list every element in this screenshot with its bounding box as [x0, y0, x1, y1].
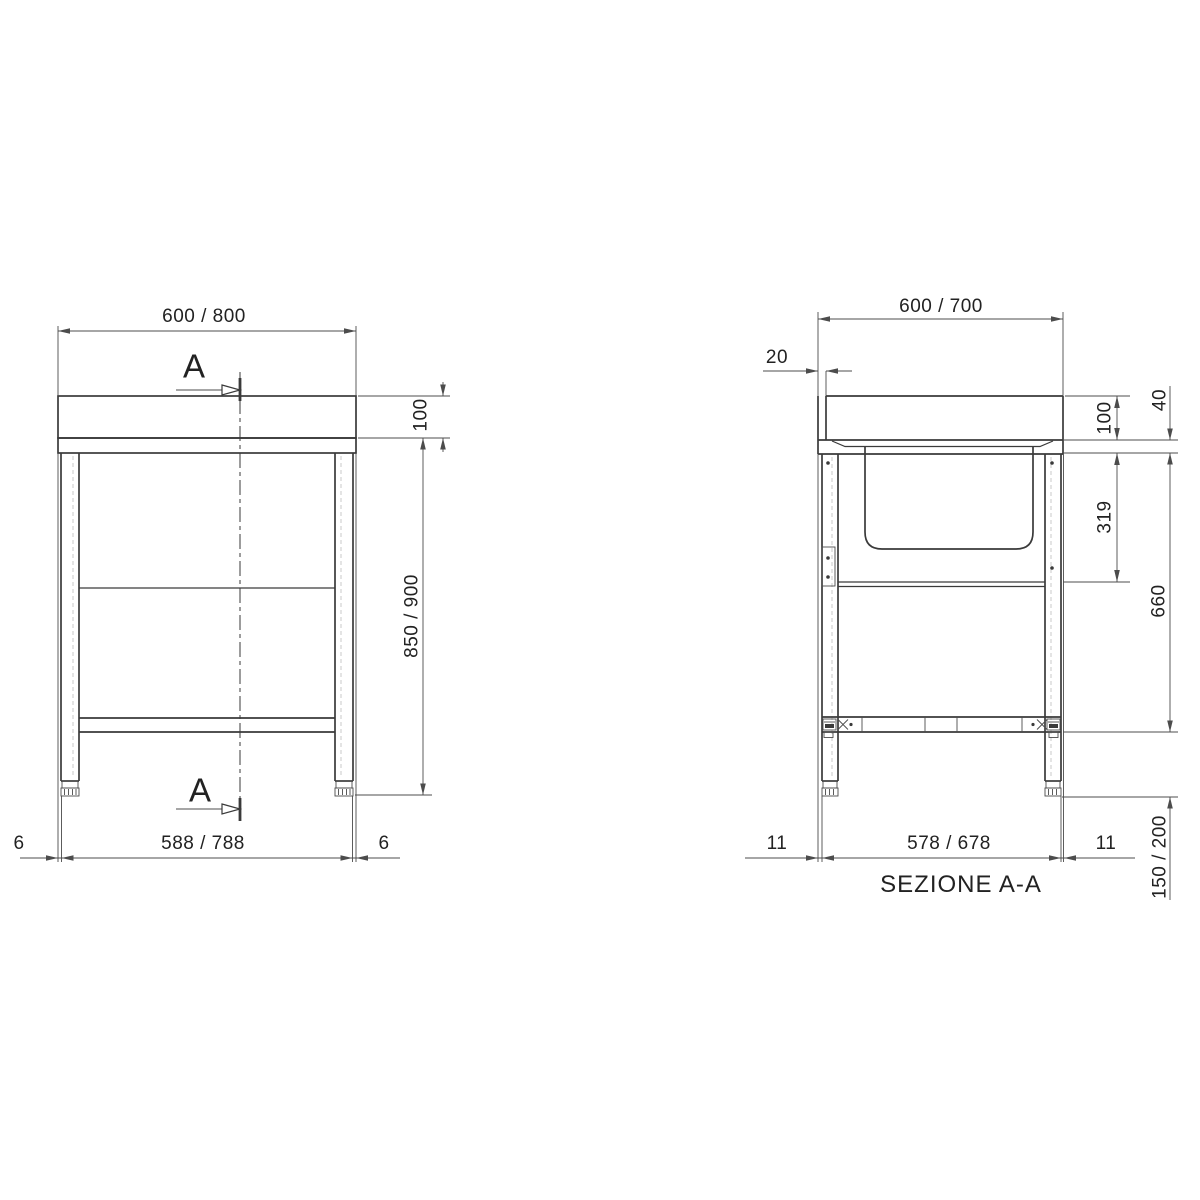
section-arrow-bottom: [222, 804, 240, 814]
dim-section-upstand-thickness: 20: [763, 347, 852, 396]
section-arrow-top: [222, 385, 240, 395]
dim-text-section-bowl-depth: 319: [1095, 500, 1116, 533]
screw-dot: [826, 461, 830, 465]
dim-text-front-width-bottom: 588 / 788: [161, 833, 245, 854]
section-worktop-block: [818, 396, 1063, 454]
dim-front-width-top: 600 / 800: [58, 306, 356, 396]
dim-section-clearance-height: 150 / 200: [1062, 797, 1178, 900]
dim-text-section-inset-left: 11: [767, 833, 788, 854]
section-back-foot: [822, 781, 838, 796]
section-dimensions: 600 / 700 20 100 319: [745, 296, 1178, 900]
screw-dot: [826, 556, 830, 560]
screw-dot: [1050, 461, 1054, 465]
dim-text-front-width-top: 600 / 800: [162, 306, 246, 327]
dim-section-frame-height: 660: [1063, 453, 1178, 732]
dim-text-section-worktop-thickness: 40: [1150, 389, 1171, 411]
section-structure: [818, 396, 1063, 796]
section-plane-marks: A A: [176, 348, 240, 821]
dim-text-front-overhang-left: 6: [13, 833, 24, 854]
section-letter-top: A: [183, 348, 205, 385]
section-sink-rim: [832, 441, 1053, 447]
dim-section-depth-top: 600 / 700: [818, 296, 1063, 396]
front-upstand: [58, 396, 356, 438]
dim-text-front-height: 850 / 900: [402, 574, 423, 658]
front-left-foot: [61, 781, 79, 796]
screw-dot: [826, 575, 830, 579]
section-brace: [838, 582, 1045, 587]
front-under-shelf: [79, 718, 335, 732]
dim-text-section-upstand-thickness: 20: [766, 347, 788, 368]
technical-drawing: A A 600 / 800 100: [0, 0, 1200, 1200]
dim-text-section-upstand-height: 100: [1095, 401, 1116, 434]
section-front-foot: [1045, 781, 1061, 796]
front-view: A A 600 / 800 100: [13, 306, 450, 862]
dim-text-front-upstand-height: 100: [411, 398, 432, 431]
drawing-sheet: A A 600 / 800 100: [0, 0, 1200, 1200]
dim-section-bowl-depth: 319: [1063, 453, 1130, 582]
dim-text-front-overhang-right: 6: [378, 833, 389, 854]
section-view: 600 / 700 20 100 319: [745, 296, 1178, 900]
screw-dot: [1050, 566, 1054, 570]
dim-text-section-depth-top: 600 / 700: [899, 296, 983, 317]
front-left-leg: [61, 453, 79, 781]
dim-front-upstand-height: 100: [358, 382, 450, 452]
section-under-shelf: [822, 717, 1061, 738]
dim-text-section-depth-bottom: 578 / 678: [907, 833, 991, 854]
front-right-foot: [335, 781, 353, 796]
front-structure: [58, 396, 356, 796]
dim-front-height: 850 / 900: [355, 438, 432, 795]
dim-text-section-clearance-height: 150 / 200: [1150, 815, 1171, 899]
dim-text-section-inset-right: 11: [1096, 833, 1117, 854]
front-worktop-edge: [58, 438, 356, 453]
section-sink-bowl: [865, 447, 1033, 550]
dim-text-section-frame-height: 660: [1149, 584, 1170, 617]
front-right-leg: [335, 453, 353, 781]
section-leg-plate: [822, 547, 835, 586]
section-letter-bottom: A: [189, 772, 211, 809]
dim-section-depth-bottom: 11 578 / 678 11: [745, 454, 1135, 862]
section-view-title: SEZIONE A-A: [880, 871, 1042, 898]
